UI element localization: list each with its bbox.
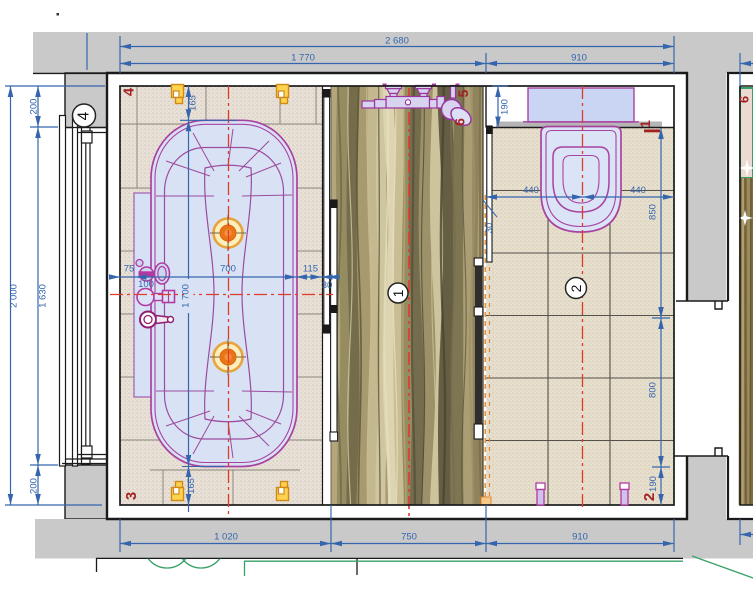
svg-text:190: 190 [500, 99, 511, 115]
svg-text:200: 200 [29, 478, 40, 494]
svg-text:2: 2 [641, 493, 658, 501]
svg-text:910: 910 [572, 532, 588, 543]
svg-text:2 000: 2 000 [9, 284, 20, 308]
svg-text:2: 2 [568, 284, 584, 292]
svg-text:700: 700 [220, 264, 236, 275]
svg-text:1 630: 1 630 [38, 284, 49, 308]
svg-text:200: 200 [29, 99, 40, 115]
svg-text:6: 6 [737, 96, 752, 103]
svg-text:1 770: 1 770 [291, 53, 315, 64]
svg-text:3: 3 [123, 492, 140, 500]
svg-text:1: 1 [637, 120, 653, 128]
svg-text:30: 30 [322, 280, 333, 291]
svg-text:910: 910 [571, 53, 587, 64]
svg-text:1: 1 [390, 289, 406, 297]
svg-text:5: 5 [455, 89, 471, 97]
svg-text:850: 850 [648, 204, 659, 220]
svg-text:100: 100 [138, 279, 154, 290]
svg-text:2 680: 2 680 [385, 36, 409, 47]
svg-text:1 700: 1 700 [181, 284, 192, 308]
svg-text:30: 30 [484, 223, 495, 234]
svg-text:1 020: 1 020 [214, 532, 238, 543]
svg-text:4: 4 [76, 111, 93, 120]
svg-text:440: 440 [630, 185, 646, 196]
svg-text:115: 115 [303, 264, 318, 275]
svg-text:800: 800 [648, 382, 659, 398]
svg-text:750: 750 [401, 532, 417, 543]
svg-text:440: 440 [523, 185, 539, 196]
svg-text:165: 165 [186, 478, 197, 494]
svg-text:165: 165 [188, 95, 199, 111]
svg-text:4: 4 [121, 87, 138, 96]
svg-text:190: 190 [648, 476, 659, 492]
svg-text:75: 75 [124, 264, 135, 275]
svg-text:6: 6 [452, 118, 468, 126]
